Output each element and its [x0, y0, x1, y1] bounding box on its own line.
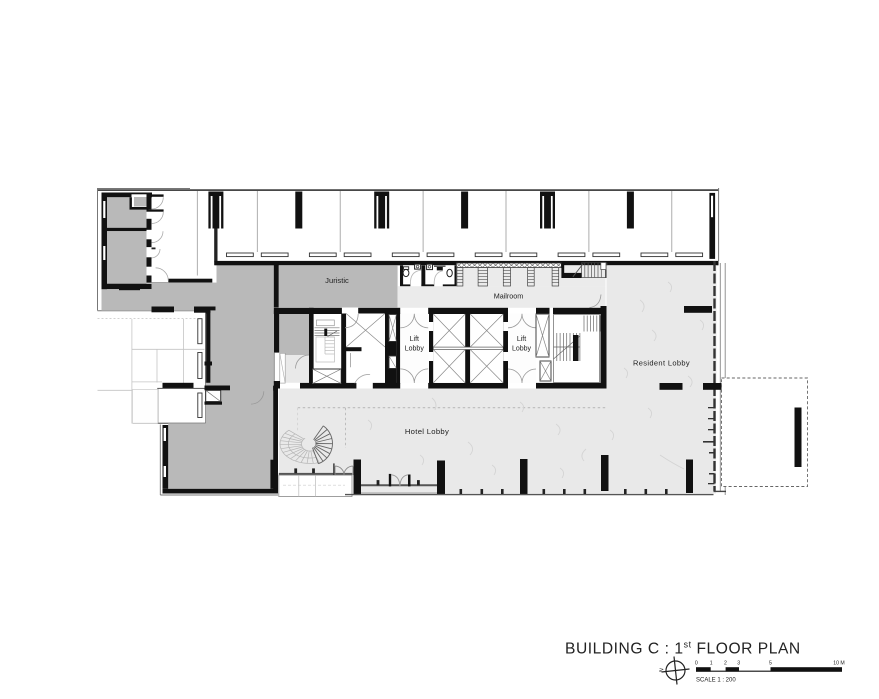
svg-text:Lift: Lift: [517, 336, 526, 343]
svg-text:Lift: Lift: [410, 336, 419, 343]
svg-text:Lobby: Lobby: [512, 346, 532, 353]
svg-text:10 M: 10 M: [833, 661, 845, 667]
svg-text:5: 5: [769, 661, 772, 667]
svg-text:0: 0: [695, 661, 698, 667]
svg-text:3: 3: [737, 661, 740, 667]
svg-text:Resident Lobby: Resident Lobby: [633, 358, 690, 367]
svg-text:1: 1: [710, 661, 713, 667]
svg-text:Hotel Lobby: Hotel Lobby: [405, 427, 449, 436]
svg-text:2: 2: [724, 661, 727, 667]
svg-text:Juristic: Juristic: [325, 276, 349, 285]
svg-text:Lobby: Lobby: [405, 346, 425, 353]
svg-text:BUILDING C : 1st FLOOR PLAN: BUILDING C : 1st FLOOR PLAN: [565, 640, 801, 658]
svg-text:SCALE 1 : 200: SCALE 1 : 200: [696, 678, 736, 684]
svg-text:Mailroom: Mailroom: [494, 291, 524, 300]
